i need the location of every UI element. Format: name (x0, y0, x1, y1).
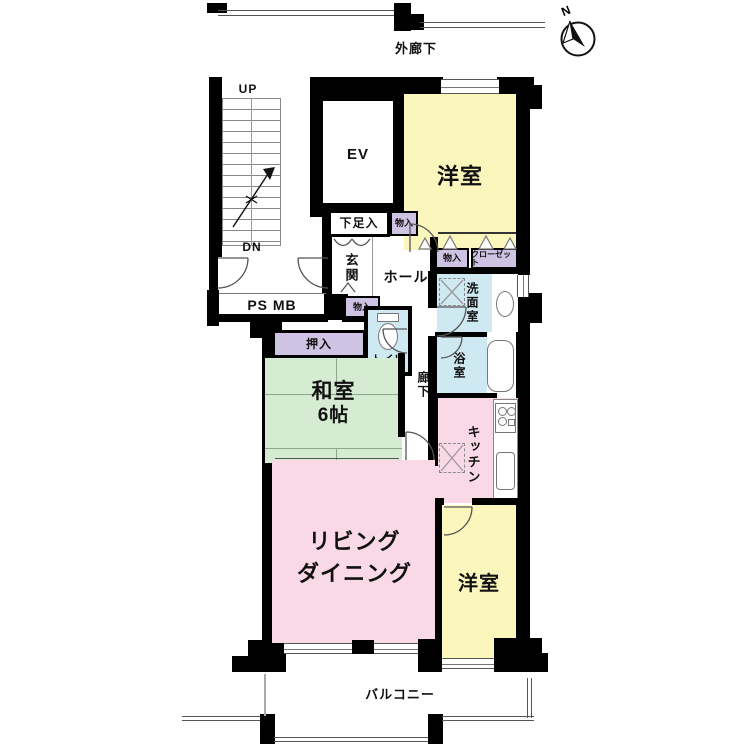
floor-plan: 外廊下 N UP DN PS MB EV 洋室 下足入 物入 玄関 ホール 物入 (0, 0, 750, 750)
bedroom-wall-line (438, 232, 516, 234)
storage-entry-label: 物入 (390, 215, 418, 231)
unit-right-wall (516, 297, 530, 652)
bedroom2-window (442, 658, 494, 669)
entrance-hall-step (372, 237, 373, 299)
elevator-label: EV (323, 145, 393, 163)
kitchen-left-wall (428, 398, 438, 466)
entrance-label: 玄関 (342, 246, 360, 290)
bedroom-top-label: 洋室 (404, 164, 516, 190)
washroom-label: 洗面室 (463, 277, 481, 329)
living-window (374, 643, 418, 654)
wet-wall (428, 336, 437, 398)
storage-wet-label: 物入 (435, 252, 469, 265)
north-compass-icon: N (546, 2, 610, 62)
bedroom2-left-wall (435, 505, 442, 648)
balcony-label: バルコニー (345, 686, 455, 702)
unit-corner (534, 653, 548, 672)
kitchen-sink-icon (496, 452, 515, 490)
bottom-wall (418, 639, 442, 672)
balcony-post (260, 714, 275, 744)
unit-corner (248, 640, 286, 672)
oshiire-label: 押入 (272, 336, 366, 352)
balcony-divider (264, 674, 266, 716)
balcony-railing-side (527, 678, 532, 718)
toilet-tank-icon (377, 313, 399, 322)
living-dining-label-1: リビング (277, 528, 432, 556)
bathroom-label: 浴室 (450, 346, 468, 386)
sink-icon (496, 291, 514, 317)
living-dining-label-2: ダイニング (277, 560, 432, 588)
toilet-bowl-icon (378, 323, 398, 350)
staircase-divider (251, 98, 252, 246)
balcony-railing (182, 716, 262, 721)
washroom-window (517, 275, 529, 297)
japanese-room-label: 和室 (265, 378, 402, 404)
stairwell-wall (209, 77, 222, 257)
unit-right-wall (528, 293, 542, 323)
corridor-railing (218, 10, 398, 16)
balcony-railing (442, 716, 534, 721)
japanese-room-size-label: 6帖 (265, 403, 402, 427)
bedroom-top-window (441, 79, 499, 94)
closet-label: クローゼット (471, 252, 518, 265)
kitchen-label: キッチン (464, 418, 482, 492)
living-window (284, 643, 352, 654)
refrigerator-space-icon (439, 443, 465, 473)
stairs-down-label: DN (232, 240, 272, 254)
balcony-post (428, 714, 443, 744)
bedroom-bottom-label: 洋室 (442, 572, 516, 596)
ps-mb-label: PS MB (222, 296, 322, 314)
balcony-railing (274, 737, 430, 742)
washing-machine-icon (439, 278, 465, 306)
compass-north-label: N (559, 3, 572, 19)
unit-right-wall (516, 100, 530, 275)
shoe-cabinet-label: 下足入 (330, 214, 388, 232)
corridor-railing (420, 22, 545, 28)
unit-corner (232, 656, 252, 672)
outer-corridor-label: 外廊下 (380, 40, 452, 56)
bottom-wall (352, 640, 374, 654)
stairs-up-label: UP (228, 82, 268, 96)
wet-wall (428, 271, 437, 308)
bathtub-icon (487, 340, 514, 392)
stove-icon (495, 403, 516, 433)
